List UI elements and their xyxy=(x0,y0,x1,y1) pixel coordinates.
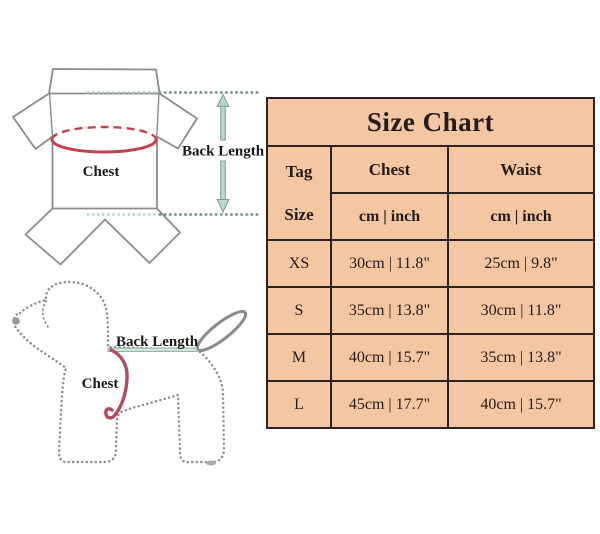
size-guide-image: { "measurement_guide": { "garment": { "c… xyxy=(0,0,600,534)
garment-chest-label: Chest xyxy=(83,164,120,180)
arrow-shaft-bottom xyxy=(221,161,226,200)
dog-ear-line xyxy=(43,301,49,328)
table-row-m: M 40cm | 15.7" 35cm | 13.8" xyxy=(267,334,594,381)
garment-collar-outline xyxy=(49,69,160,94)
tag-size-value: L xyxy=(267,381,331,428)
size-chart-table: Size Chart Tag Size Chest Waist cm | inc… xyxy=(266,97,595,429)
tag-size-value: XS xyxy=(267,240,331,287)
dog-paw-pad xyxy=(206,461,216,466)
chest-ellipse-top-dashed xyxy=(52,127,156,140)
waist-value: 30cm | 11.8" xyxy=(448,287,594,334)
garment-leg-flaps xyxy=(26,209,181,265)
table-row-l: L 45cm | 17.7" 40cm | 15.7" xyxy=(267,381,594,428)
dog-back-length-label: Back Length xyxy=(116,334,199,350)
waist-value: 40cm | 15.7" xyxy=(448,381,594,428)
chest-value: 45cm | 17.7" xyxy=(331,381,448,428)
table-row-xs: XS 30cm | 11.8" 25cm | 9.8" xyxy=(267,240,594,287)
tag-header-line2: Size xyxy=(268,206,330,223)
dog-chest-label: Chest xyxy=(82,376,119,392)
chest-column-header: Chest xyxy=(331,146,448,193)
tag-size-value: S xyxy=(267,287,331,334)
tag-size-value: M xyxy=(267,334,331,381)
arrow-head-down-icon xyxy=(217,200,229,213)
dog-diagram: Back Length Chest xyxy=(12,282,250,465)
waist-value: 35cm | 13.8" xyxy=(448,334,594,381)
dog-tail xyxy=(193,306,250,356)
chest-girth-ellipse xyxy=(52,127,156,152)
size-chart-title: Size Chart xyxy=(267,98,594,146)
chest-value: 30cm | 11.8" xyxy=(331,240,448,287)
garment-back-length-label: Back Length xyxy=(182,144,265,160)
chest-unit-header: cm | inch xyxy=(331,193,448,240)
dog-nose xyxy=(12,317,20,325)
chest-ellipse-bottom-solid xyxy=(52,140,156,153)
garment-right-sleeve xyxy=(157,94,197,149)
waist-column-header: Waist xyxy=(448,146,594,193)
arrow-shaft-top xyxy=(221,106,226,140)
tag-header-line1: Tag xyxy=(268,163,330,180)
size-chart-panel: Size Chart Tag Size Chest Waist cm | inc… xyxy=(266,97,595,429)
waist-unit-header: cm | inch xyxy=(448,193,594,240)
chest-value: 35cm | 13.8" xyxy=(331,287,448,334)
garment-left-sleeve xyxy=(13,94,53,150)
waist-value: 25cm | 9.8" xyxy=(448,240,594,287)
dog-outline xyxy=(14,282,224,462)
chest-value: 40cm | 15.7" xyxy=(331,334,448,381)
arrow-head-up-icon xyxy=(217,95,229,107)
tag-size-header-cell: Tag Size xyxy=(267,146,331,240)
table-row-s: S 35cm | 13.8" 30cm | 11.8" xyxy=(267,287,594,334)
